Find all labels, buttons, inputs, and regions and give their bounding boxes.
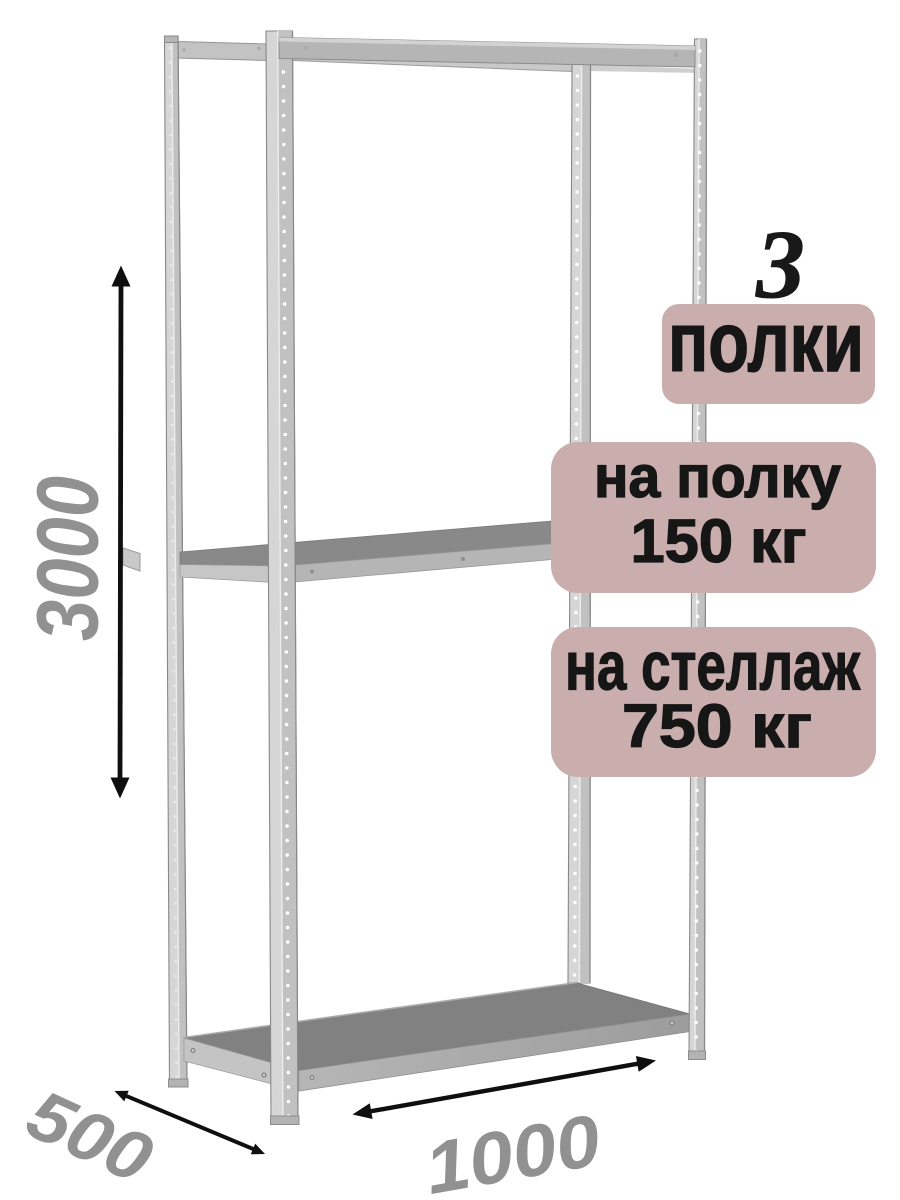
svg-text:500: 500 (16, 1075, 164, 1199)
svg-text:на полку: на полку (594, 444, 841, 510)
svg-text:3000: 3000 (19, 476, 116, 641)
svg-text:750 кг: 750 кг (622, 692, 812, 760)
svg-text:полки: полки (668, 295, 864, 389)
svg-text:150 кг: 150 кг (631, 507, 807, 575)
svg-text:1000: 1000 (419, 1100, 606, 1200)
